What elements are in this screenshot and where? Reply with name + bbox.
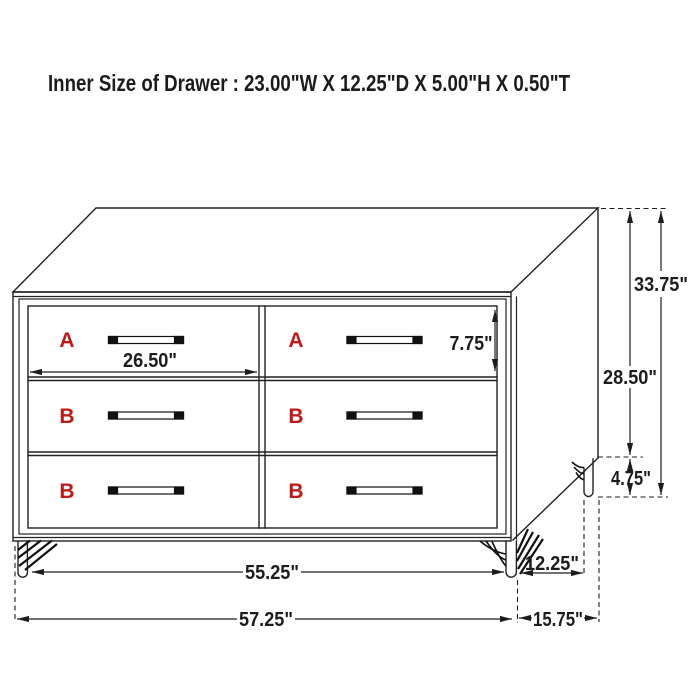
dim-label-leg-span: 55.25" xyxy=(245,562,299,584)
front-right-leg xyxy=(506,541,516,577)
cabinet-structure xyxy=(13,208,598,541)
dim-label-overall-width: 57.25" xyxy=(239,609,293,631)
diagram-canvas: Inner Size of Drawer : 23.00"W X 12.25"D… xyxy=(0,0,700,700)
drawer-letter-b2-right: B xyxy=(288,480,303,503)
handle-b1-right xyxy=(347,412,422,419)
front-right-leg-coils xyxy=(480,541,506,566)
drawer-opening-frame xyxy=(28,306,497,528)
dim-label-drawer-height: 7.75" xyxy=(450,333,493,355)
dim-label-leg-height: 4.75" xyxy=(611,468,651,490)
drawer-letter-b1-right: B xyxy=(288,405,303,428)
dim-label-cabinet-height: 28.50" xyxy=(603,367,657,389)
drawer-letter-a-left: A xyxy=(59,329,74,352)
dim-label-top-depth: 12.25" xyxy=(525,553,579,575)
cabinet-top-face xyxy=(13,208,598,292)
dim-label-overall-height: 33.75" xyxy=(634,274,688,296)
dresser-dimension-diagram: Inner Size of Drawer : 23.00"W X 12.25"D… xyxy=(0,0,700,700)
handle-a-left xyxy=(109,337,184,344)
handle-b1-left xyxy=(109,412,184,419)
legs xyxy=(18,459,593,577)
handle-b2-left xyxy=(109,487,184,494)
front-left-leg-hatch xyxy=(18,541,57,571)
front-face-inner-frame xyxy=(19,299,506,534)
drawer-letter-a-right: A xyxy=(288,329,303,352)
cabinet-right-bottom-edge xyxy=(513,458,598,540)
front-face-outer-frame xyxy=(13,292,511,541)
handle-a-right xyxy=(347,337,422,344)
drawer-letter-b1-left: B xyxy=(59,405,74,428)
dim-label-overall-depth: 15.75" xyxy=(533,609,583,631)
handle-b2-right xyxy=(347,487,422,494)
drawer-letter-b2-left: B xyxy=(59,480,74,503)
page-title: Inner Size of Drawer : 23.00"W X 12.25"D… xyxy=(48,70,570,96)
dim-label-drawer-width: 26.50" xyxy=(123,350,177,372)
